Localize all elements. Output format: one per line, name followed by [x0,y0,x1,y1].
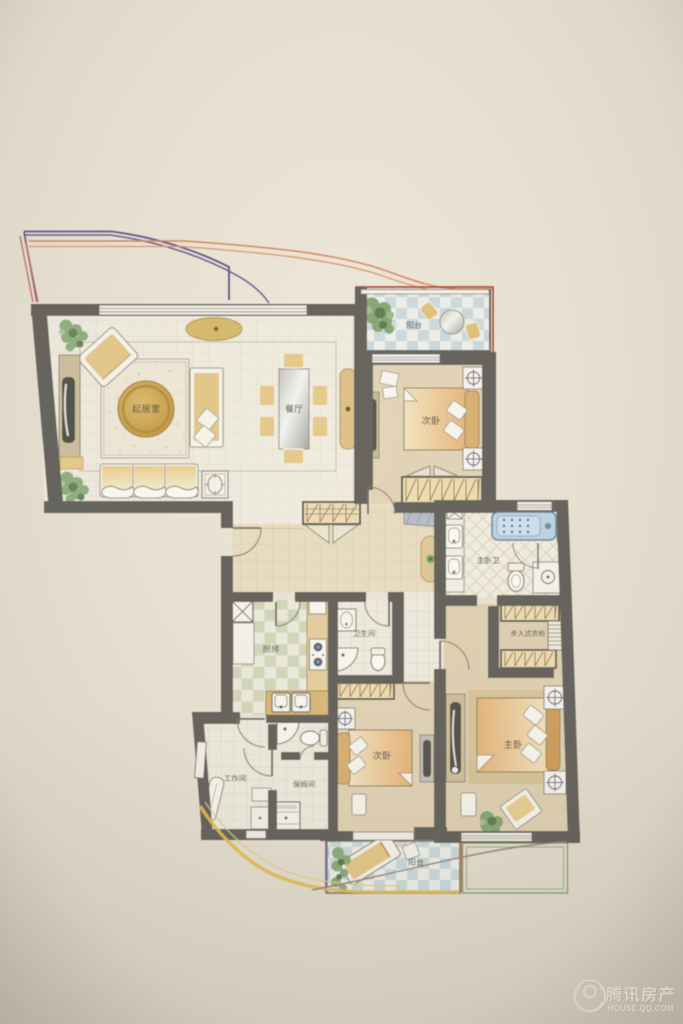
svg-text:HOUSE.QQ.COM: HOUSE.QQ.COM [608,1004,674,1013]
